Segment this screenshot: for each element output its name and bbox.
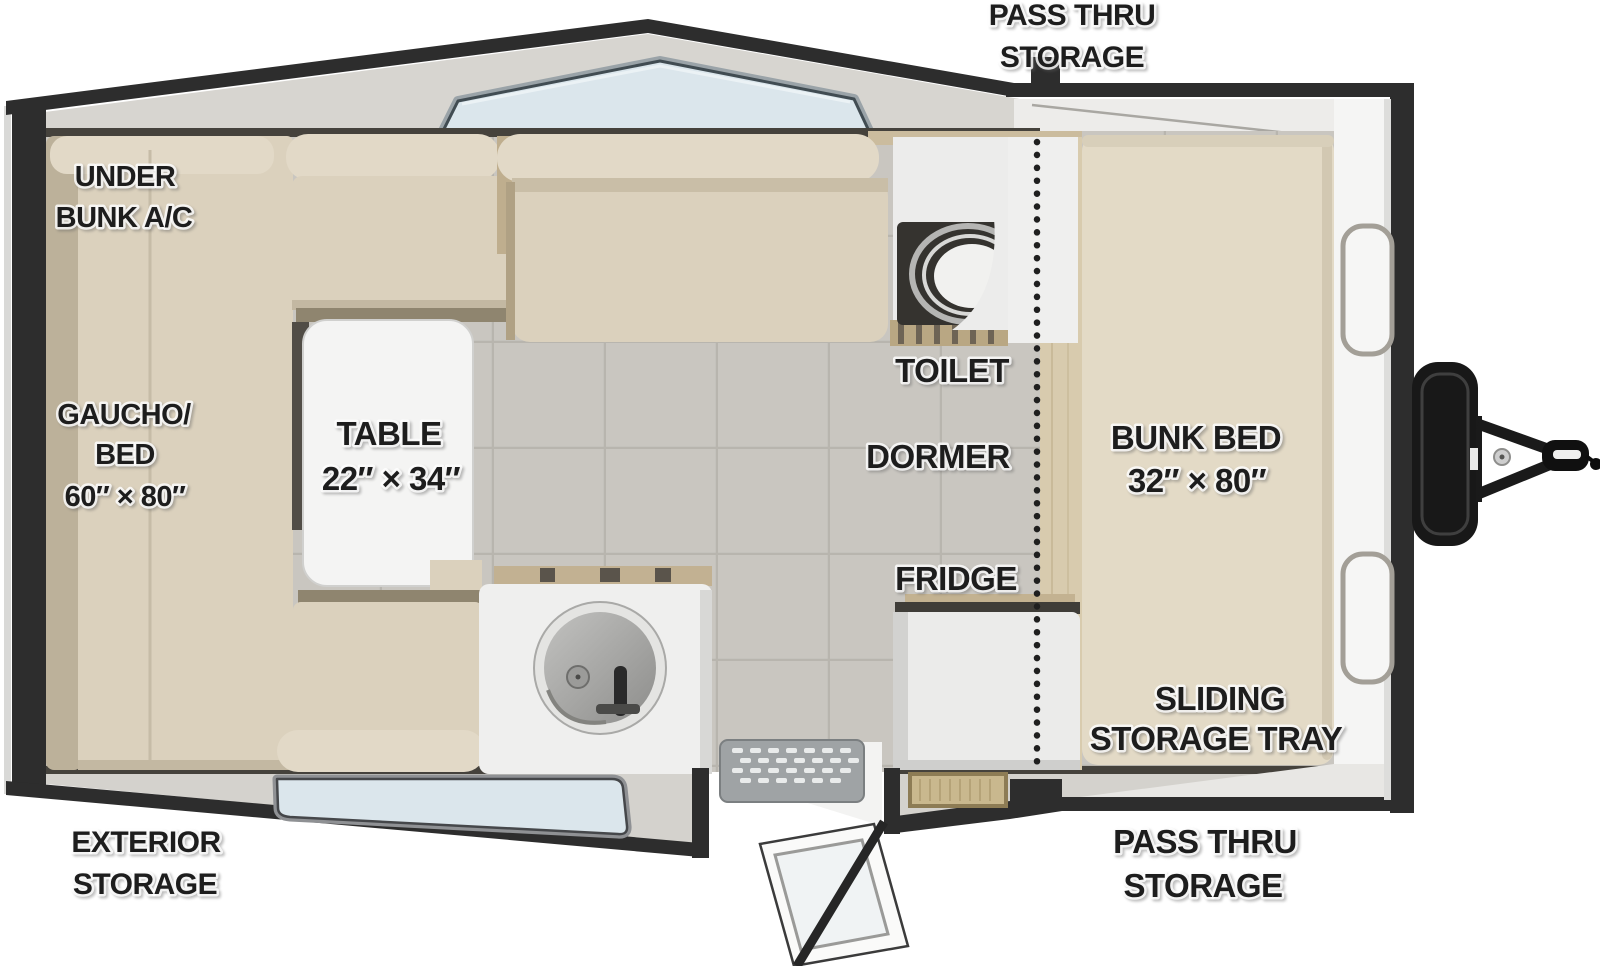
bottom-roof-window [277, 779, 627, 834]
dinette-table [292, 320, 473, 586]
label-exterior-storage-line2: STORAGE [73, 868, 217, 901]
label-pass-thru-storage-bottom-line2: STORAGE [1123, 867, 1282, 904]
label-fridge: FRIDGE [895, 560, 1017, 597]
label-gaucho-bed-line2: BED [95, 439, 155, 471]
fridge-cabinet [893, 594, 1080, 770]
label-dormer: DORMER [866, 438, 1010, 475]
door-mat [910, 774, 1006, 806]
label-bunk-bed-line2: 32″ × 80″ [1128, 462, 1267, 499]
label-pass-thru-storage-top-line2: STORAGE [1000, 41, 1144, 74]
nose-interior-wall [1334, 99, 1392, 800]
sofa-bench [497, 134, 888, 342]
right-wall-inner-edge [1384, 99, 1391, 800]
label-pass-thru-storage-top-line1: PASS THRU [989, 0, 1156, 32]
label-gaucho-bed-line3: 60″ × 80″ [65, 481, 186, 513]
label-toilet: TOILET [895, 352, 1009, 389]
label-sliding-storage-tray-line2: STORAGE TRAY [1090, 720, 1343, 757]
door-post-left [692, 768, 709, 858]
floorplan-svg: PASS THRU STORAGE UNDER BUNK A/C GAUCHO/… [0, 0, 1600, 966]
outline-right-wall [1390, 83, 1414, 813]
label-table-line2: 22″ × 34″ [322, 460, 461, 497]
label-under-bunk-ac-line2: BUNK A/C [56, 202, 193, 234]
entry-door-open [760, 822, 908, 966]
sink-cabinet [479, 566, 712, 774]
label-bunk-bed-line1: BUNK BED [1111, 419, 1281, 456]
outline-top-right [1050, 83, 1414, 97]
floorplan-diagram: PASS THRU STORAGE UNDER BUNK A/C GAUCHO/… [0, 0, 1600, 966]
label-table-line1: TABLE [336, 415, 441, 452]
label-gaucho-bed-line1: GAUCHO/ [57, 399, 191, 431]
label-exterior-storage-line1: EXTERIOR [71, 826, 221, 859]
dinette-lower-bench [277, 560, 485, 772]
nose-window-lower [1343, 554, 1392, 682]
label-under-bunk-ac-line1: UNDER [75, 161, 176, 193]
label-sliding-storage-tray-line1: SLIDING [1155, 680, 1285, 717]
outline-left-wall [12, 108, 46, 792]
nose-window-upper [1343, 226, 1392, 354]
entry-area [720, 740, 1006, 966]
entry-step [720, 740, 864, 802]
hitch [1412, 362, 1600, 546]
toilet-cabinet [890, 137, 1078, 346]
label-pass-thru-storage-bottom-line1: PASS THRU [1113, 823, 1297, 860]
tongue-bar-lower [1478, 462, 1556, 494]
dinette-upper-bench [286, 134, 515, 322]
